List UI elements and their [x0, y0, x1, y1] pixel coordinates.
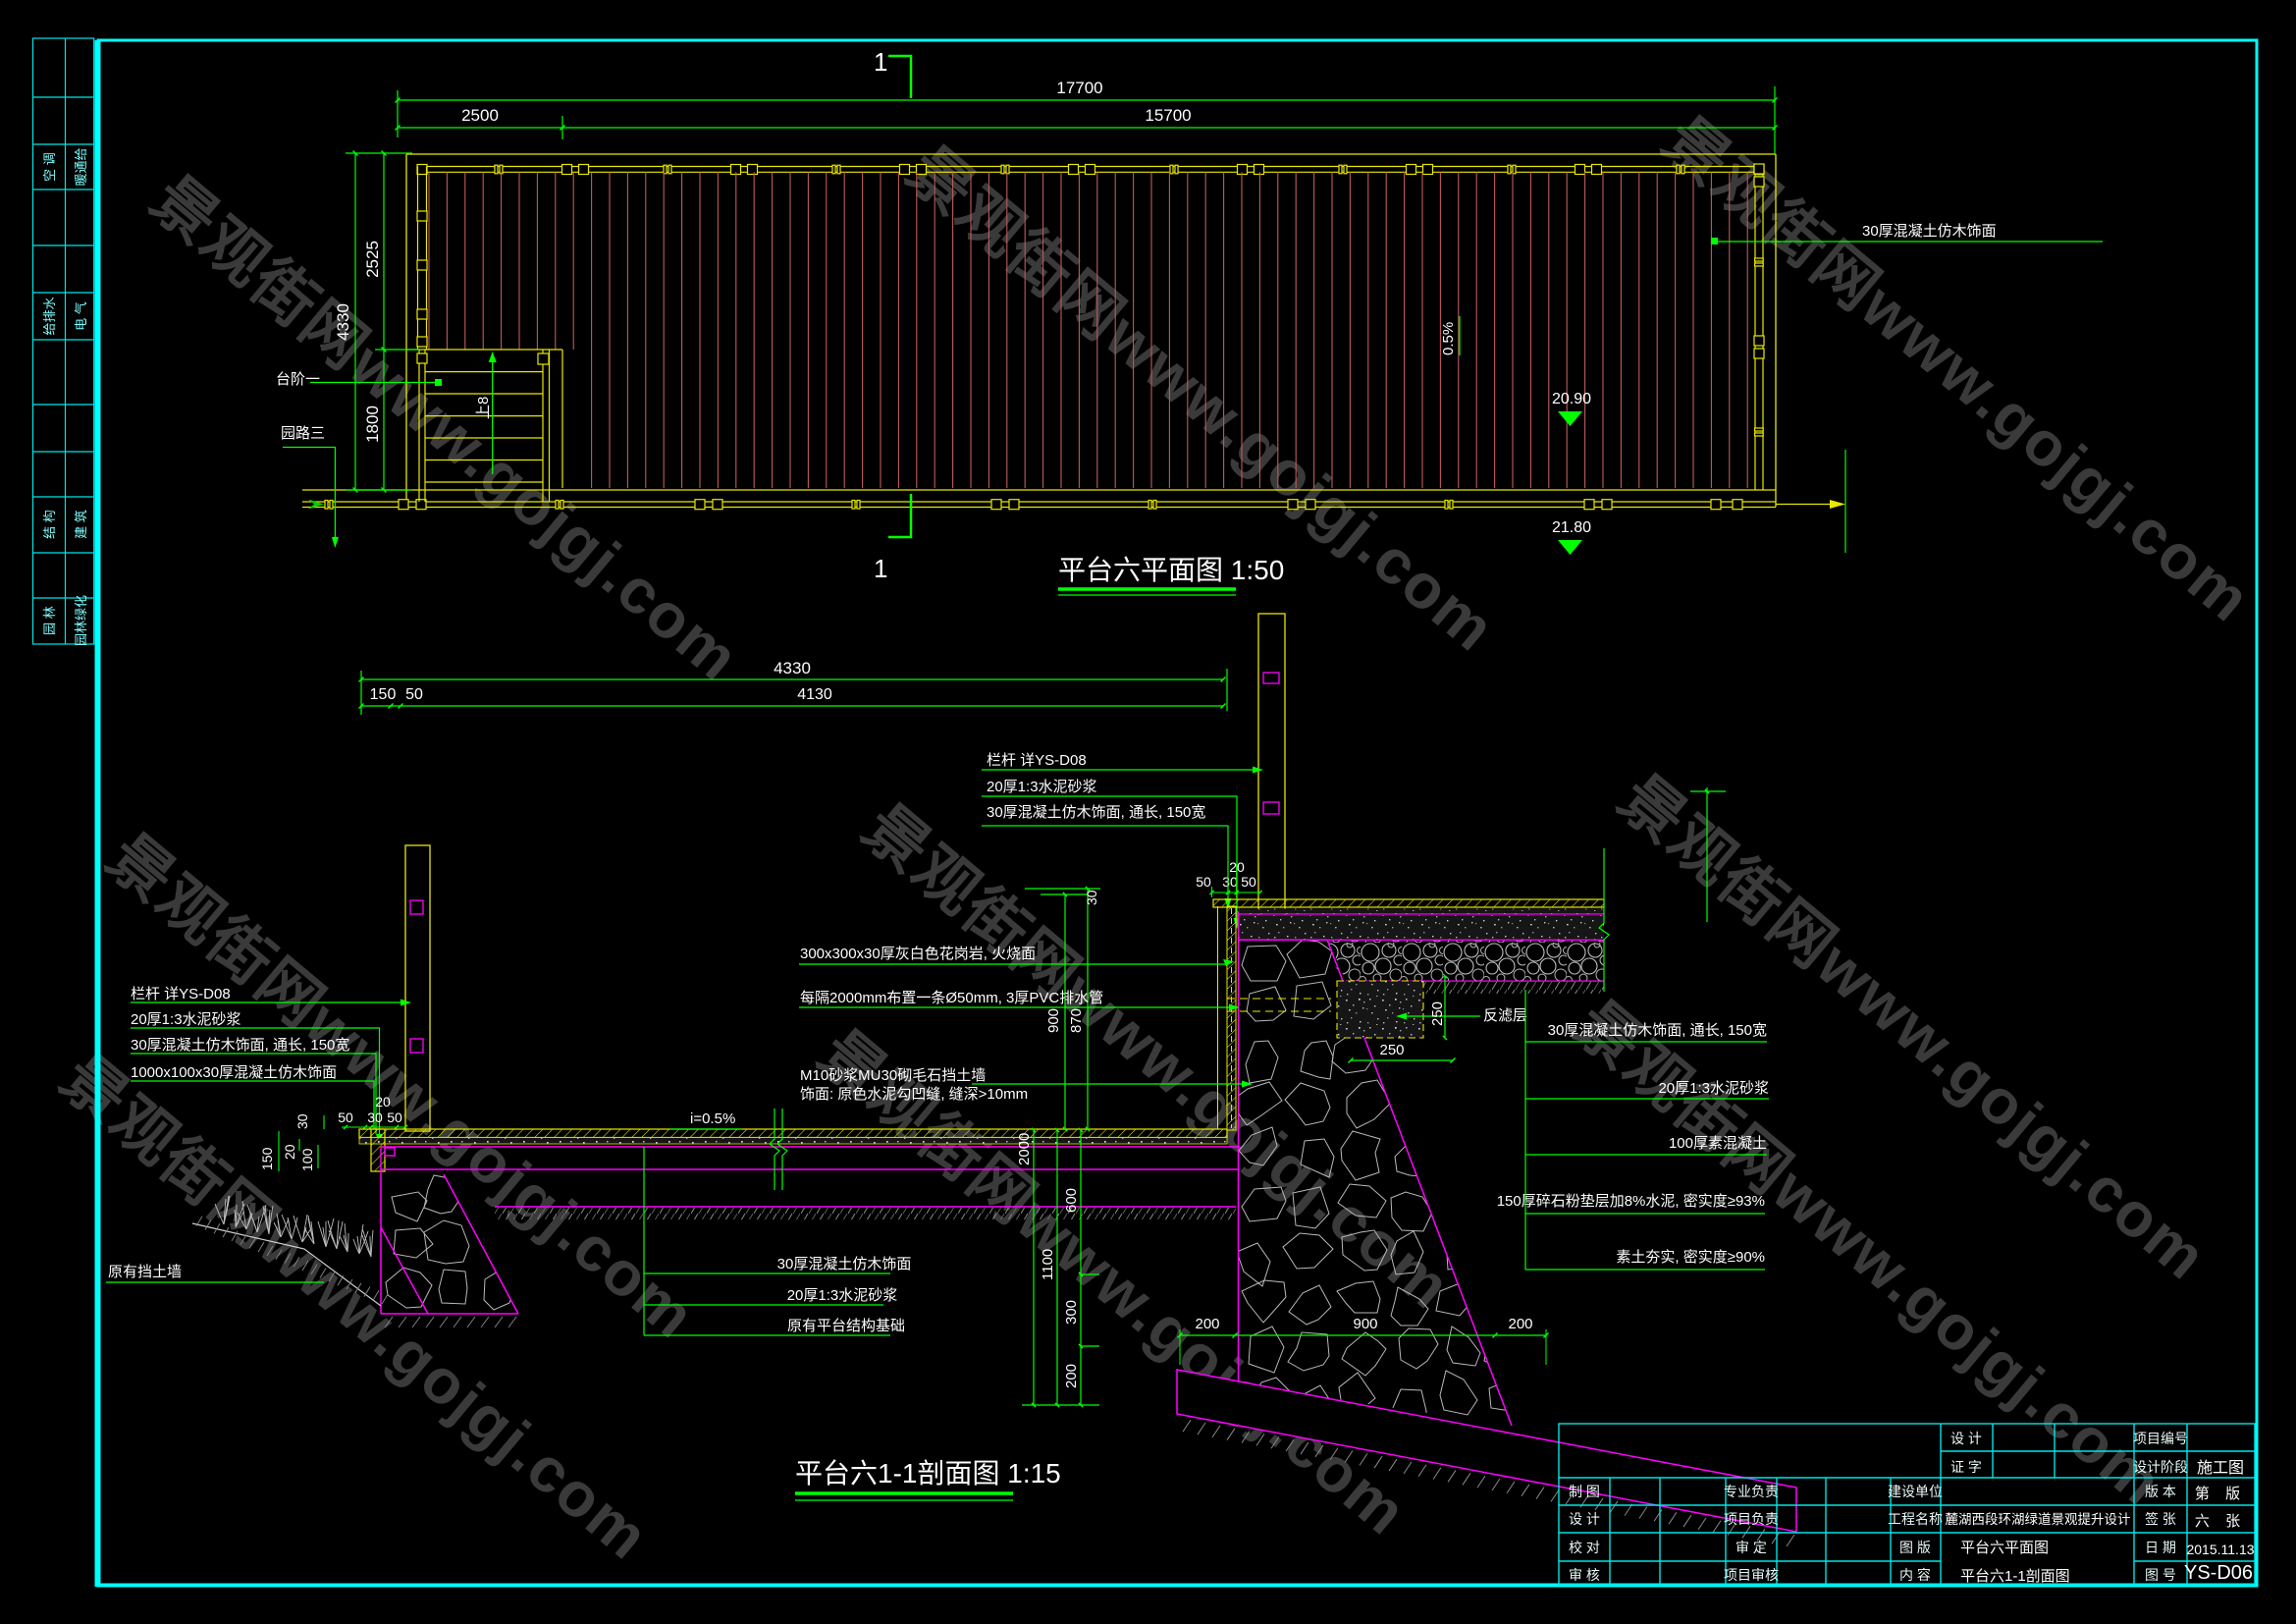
svg-text:证 字: 证 字	[1950, 1459, 1982, 1475]
svg-text:施工图: 施工图	[2197, 1459, 2244, 1477]
svg-text:2015.11.13: 2015.11.13	[2186, 1542, 2254, 1557]
svg-text:900: 900	[1045, 1008, 1062, 1033]
svg-text:200: 200	[1195, 1316, 1219, 1332]
svg-text:图 版: 图 版	[1899, 1540, 1931, 1555]
svg-text:图 号: 图 号	[2145, 1567, 2176, 1583]
svg-text:建 筑: 建 筑	[74, 510, 88, 539]
svg-text:审 核: 审 核	[1569, 1567, 1600, 1583]
svg-text:i=0.5%: i=0.5%	[690, 1110, 735, 1127]
svg-text:17700: 17700	[1056, 79, 1102, 97]
svg-text:结 构: 结 构	[42, 510, 57, 539]
svg-text:上8: 上8	[475, 397, 492, 419]
svg-text:平台六1-1剖面图 1:15: 平台六1-1剖面图 1:15	[795, 1458, 1061, 1489]
svg-text:M10砂浆MU30砌毛石挡土墙: M10砂浆MU30砌毛石挡土墙	[800, 1066, 986, 1084]
svg-text:20: 20	[375, 1094, 391, 1110]
svg-text:600: 600	[1063, 1188, 1080, 1213]
svg-text:200: 200	[1063, 1364, 1080, 1388]
svg-text:素土夯实, 密实度≥90%: 素土夯实, 密实度≥90%	[1616, 1249, 1765, 1266]
svg-text:150: 150	[259, 1147, 275, 1170]
svg-text:30厚混凝土仿木饰面, 通长, 150宽: 30厚混凝土仿木饰面, 通长, 150宽	[987, 804, 1205, 821]
svg-text:给排水: 给排水	[42, 297, 57, 335]
svg-text:30厚混凝土仿木饰面: 30厚混凝土仿木饰面	[777, 1256, 912, 1272]
svg-text:15700: 15700	[1145, 106, 1191, 125]
svg-text:反滤层: 反滤层	[1483, 1007, 1527, 1024]
svg-text:建设单位: 建设单位	[1888, 1484, 1943, 1499]
svg-text:20厚1:3水泥砂浆: 20厚1:3水泥砂浆	[987, 778, 1097, 795]
svg-text:2525: 2525	[363, 241, 382, 278]
svg-text:150: 150	[370, 686, 397, 703]
svg-text:30: 30	[367, 1110, 383, 1125]
svg-text:50: 50	[338, 1110, 353, 1125]
svg-text:1: 1	[874, 554, 887, 583]
svg-text:内 容: 内 容	[1899, 1567, 1931, 1583]
svg-text:30: 30	[1222, 874, 1238, 890]
svg-text:2500: 2500	[461, 106, 499, 125]
svg-text:20: 20	[282, 1144, 297, 1160]
svg-text:制 图: 制 图	[1569, 1484, 1600, 1499]
svg-text:原有挡土墙: 原有挡土墙	[108, 1264, 182, 1280]
svg-text:300: 300	[1063, 1300, 1080, 1325]
svg-text:暖通给: 暖通给	[74, 147, 88, 186]
svg-text:100: 100	[299, 1148, 315, 1171]
svg-text:30: 30	[294, 1113, 310, 1129]
svg-text:平台六平面图: 平台六平面图	[1960, 1540, 2049, 1556]
svg-text:21.80: 21.80	[1552, 519, 1591, 536]
svg-text:250: 250	[1379, 1042, 1404, 1058]
svg-text:200: 200	[1508, 1316, 1532, 1332]
svg-text:园 林: 园 林	[42, 606, 57, 635]
svg-text:4330: 4330	[334, 303, 352, 341]
svg-text:4130: 4130	[797, 686, 832, 703]
svg-text:日 期: 日 期	[2145, 1540, 2176, 1555]
svg-text:第 版: 第 版	[2195, 1485, 2246, 1502]
svg-text:20: 20	[1229, 859, 1245, 875]
svg-text:20.90: 20.90	[1552, 391, 1591, 407]
svg-text:签 张: 签 张	[2145, 1511, 2176, 1527]
svg-text:项目负责: 项目负责	[1724, 1511, 1779, 1527]
svg-text:设 计: 设 计	[1569, 1511, 1600, 1527]
svg-text:30: 30	[1084, 890, 1099, 905]
svg-text:版 本: 版 本	[2145, 1484, 2176, 1499]
svg-text:设 计: 设 计	[1950, 1431, 1982, 1446]
svg-text:50: 50	[405, 686, 423, 703]
svg-text:专业负责: 专业负责	[1724, 1484, 1779, 1499]
svg-text:150厚碎石粉垫层加8%水泥, 密实度≥93%: 150厚碎石粉垫层加8%水泥, 密实度≥93%	[1497, 1193, 1765, 1210]
svg-text:20厚1:3水泥砂浆: 20厚1:3水泥砂浆	[1658, 1079, 1769, 1097]
svg-text:50: 50	[1241, 874, 1256, 890]
svg-text:平台六平面图 1:50: 平台六平面图 1:50	[1058, 555, 1284, 585]
svg-text:870: 870	[1068, 1008, 1085, 1033]
svg-text:20厚1:3水泥砂浆: 20厚1:3水泥砂浆	[131, 1010, 241, 1028]
svg-text:园路三: 园路三	[281, 425, 325, 442]
svg-text:每隔2000mm布置一条Ø50mm, 3厚PVC排水管: 每隔2000mm布置一条Ø50mm, 3厚PVC排水管	[800, 990, 1103, 1006]
svg-text:250: 250	[1429, 1001, 1446, 1026]
svg-text:4330: 4330	[774, 659, 811, 677]
svg-text:0.5%: 0.5%	[1440, 322, 1457, 355]
svg-text:校 对: 校 对	[1569, 1540, 1600, 1555]
svg-text:30厚混凝土仿木饰面, 通长, 150宽: 30厚混凝土仿木饰面, 通长, 150宽	[1548, 1022, 1767, 1039]
svg-text:2000: 2000	[1016, 1133, 1033, 1165]
svg-text:六 张: 六 张	[2195, 1513, 2246, 1530]
svg-text:1800: 1800	[363, 406, 382, 443]
svg-text:麓湖西段环湖绿道景观提升设计: 麓湖西段环湖绿道景观提升设计	[1946, 1512, 2131, 1527]
svg-text:50: 50	[1196, 874, 1211, 890]
svg-text:项目审核: 项目审核	[1724, 1567, 1779, 1583]
svg-text:100厚素混凝土: 100厚素混凝土	[1669, 1135, 1767, 1152]
svg-text:1000x100x30厚混凝土仿木饰面: 1000x100x30厚混凝土仿木饰面	[131, 1064, 337, 1081]
svg-text:原有平台结构基础: 原有平台结构基础	[787, 1318, 905, 1334]
svg-text:栏杆 详YS-D08: 栏杆 详YS-D08	[987, 752, 1087, 769]
svg-text:30厚混凝土仿木饰面: 30厚混凝土仿木饰面	[1862, 223, 1997, 240]
svg-text:饰面: 原色水泥勾凹缝, 缝深>10mm: 饰面: 原色水泥勾凹缝, 缝深>10mm	[800, 1086, 1028, 1103]
svg-text:30厚混凝土仿木饰面, 通长, 150宽: 30厚混凝土仿木饰面, 通长, 150宽	[131, 1037, 349, 1054]
svg-text:园林绿化: 园林绿化	[74, 595, 88, 646]
svg-text:300x300x30厚灰白色花岗岩, 火烧面: 300x300x30厚灰白色花岗岩, 火烧面	[800, 946, 1036, 962]
svg-text:900: 900	[1353, 1316, 1377, 1332]
svg-text:1100: 1100	[1040, 1249, 1056, 1280]
svg-text:项目编号: 项目编号	[2133, 1431, 2188, 1446]
svg-text:栏杆 详YS-D08: 栏杆 详YS-D08	[131, 986, 231, 1002]
svg-text:电 气: 电 气	[74, 301, 88, 331]
svg-text:YS-D06: YS-D06	[2184, 1562, 2253, 1584]
svg-text:20厚1:3水泥砂浆: 20厚1:3水泥砂浆	[787, 1286, 898, 1304]
svg-text:50: 50	[387, 1110, 402, 1125]
svg-text:设计阶段: 设计阶段	[2133, 1459, 2188, 1475]
svg-text:1: 1	[874, 47, 887, 77]
svg-text:审 定: 审 定	[1735, 1540, 1767, 1555]
svg-text:空 调: 空 调	[42, 152, 57, 182]
svg-text:工程名称: 工程名称	[1888, 1511, 1943, 1527]
svg-text:平台六1-1剖面图: 平台六1-1剖面图	[1960, 1568, 2070, 1585]
svg-text:台阶一: 台阶一	[276, 371, 320, 388]
